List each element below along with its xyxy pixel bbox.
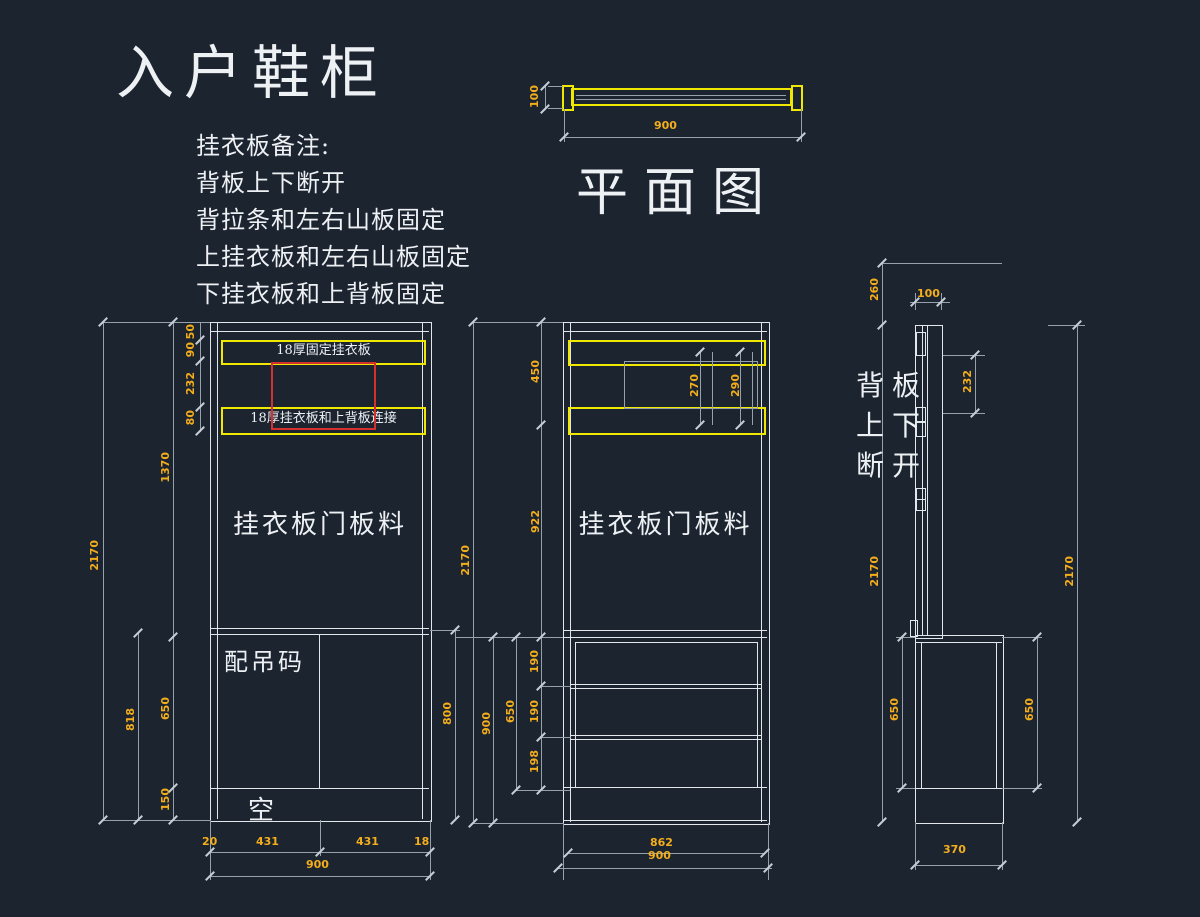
- shelf-line: [571, 688, 761, 689]
- dim-label: 190: [528, 700, 541, 723]
- dim-label: 862: [650, 836, 673, 849]
- plan-view-title: 平面图: [576, 150, 780, 225]
- dim-label: 818: [124, 708, 137, 731]
- hanger-code-text: 配吊码: [224, 642, 305, 677]
- shelf-line: [571, 739, 761, 740]
- door-material-text: 挂衣板门板料: [210, 504, 430, 541]
- bottom-line: [564, 820, 767, 821]
- dim-ext: [548, 108, 563, 109]
- note-line: 挂衣板备注:: [196, 128, 471, 165]
- base-cabinet-profile: [915, 635, 1004, 824]
- side-panel-line: [761, 323, 762, 822]
- dim-ext: [455, 637, 563, 638]
- dim-label: 900: [654, 119, 677, 132]
- note-line: 上挂衣板和左右山板固定: [196, 239, 471, 276]
- top-panel-line: [211, 331, 429, 332]
- dim-label: 100: [528, 85, 541, 108]
- dim-label: 260: [868, 278, 881, 301]
- dim-label: 900: [306, 858, 329, 871]
- dim-line: [1077, 325, 1078, 822]
- inner-box-line: [921, 642, 922, 788]
- dim-label: 922: [529, 510, 542, 533]
- dim-line: [493, 637, 494, 823]
- dim-label: 650: [159, 697, 172, 720]
- dim-ext: [548, 86, 563, 87]
- dim-label: 650: [888, 698, 901, 721]
- center-divider: [319, 634, 320, 788]
- dim-line: [138, 633, 139, 820]
- plinth-line: [915, 788, 1002, 789]
- panel-line: [576, 99, 786, 100]
- dim-ext: [103, 322, 210, 323]
- side-panel-line: [422, 323, 423, 819]
- dim-ext: [943, 355, 985, 356]
- dim-line: [173, 322, 174, 820]
- dim-label: 20: [202, 835, 217, 848]
- dim-label: 650: [504, 700, 517, 723]
- empty-text: 空: [248, 790, 274, 827]
- dim-line: [473, 322, 474, 823]
- inner-box-line: [575, 642, 757, 643]
- hanger-clip: [916, 332, 926, 356]
- dim-ext: [103, 820, 210, 821]
- dim-label: 900: [648, 849, 671, 862]
- divider-line: [564, 630, 767, 631]
- dim-label: 2170: [459, 545, 472, 576]
- divider-line: [211, 628, 429, 629]
- note-line: 背板上下断开: [196, 165, 471, 202]
- dim-line: [915, 865, 1002, 866]
- top-reference-line: [882, 263, 1002, 264]
- dim-line: [103, 322, 104, 820]
- hanger-clip: [916, 499, 926, 511]
- dim-ext: [563, 823, 564, 880]
- dim-line: [558, 868, 772, 869]
- bottom-shelf-line: [564, 787, 767, 788]
- note-line: 断开: [856, 446, 928, 486]
- dim-ext: [943, 413, 985, 414]
- note-line: 背拉条和左右山板固定: [196, 202, 471, 239]
- board-label: 18厚固定挂衣板: [223, 342, 424, 359]
- dim-line: [210, 876, 430, 877]
- dim-label: 650: [1023, 698, 1036, 721]
- divider-line: [564, 637, 767, 638]
- dim-ext: [516, 790, 570, 791]
- dim-label: 190: [528, 650, 541, 673]
- inner-box-line: [996, 642, 997, 788]
- dim-line: [541, 322, 542, 790]
- dim-label: 198: [528, 750, 541, 773]
- side-panel-line: [217, 323, 218, 819]
- dim-label: 800: [441, 702, 454, 725]
- divider-line: [211, 634, 429, 635]
- dim-label: 50: [184, 324, 197, 339]
- inner-box-line: [575, 642, 576, 787]
- hanger-board-bottom: [568, 407, 766, 435]
- shelf-line: [571, 684, 761, 685]
- dim-label: 900: [480, 712, 493, 735]
- dim-line: [455, 630, 456, 820]
- dim-label: 232: [961, 370, 974, 393]
- dim-ext: [473, 823, 563, 824]
- side-panel-line: [570, 323, 571, 822]
- highlight-red-box: [271, 362, 376, 430]
- dim-label: 1370: [159, 452, 172, 483]
- dim-label: 80: [184, 410, 197, 425]
- dim-label: 90: [184, 342, 197, 357]
- dim-ext: [541, 686, 571, 687]
- panel-line: [576, 95, 786, 96]
- dim-label: 18: [414, 835, 429, 848]
- cad-canvas: 入户鞋柜 挂衣板备注: 背板上下断开 背拉条和左右山板固定 上挂衣板和左右山板固…: [0, 0, 1200, 917]
- inner-box-line: [757, 642, 758, 787]
- dim-label: 232: [184, 372, 197, 395]
- plan-panel: [571, 88, 792, 106]
- back-panel-note: 背板 上下 断开: [856, 366, 928, 486]
- dim-ext: [541, 737, 571, 738]
- dim-label: 150: [159, 788, 172, 811]
- dim-ext: [1048, 325, 1085, 326]
- note-line: 上下: [856, 406, 928, 446]
- dim-label: 431: [256, 835, 279, 848]
- bottom-shelf-line: [211, 788, 429, 789]
- dim-label: 100: [917, 287, 940, 300]
- note-line: 下挂衣板和上背板固定: [196, 276, 471, 313]
- dim-label: 2170: [868, 556, 881, 587]
- dim-label: 370: [943, 843, 966, 856]
- top-panel-line: [564, 331, 767, 332]
- dim-line: [882, 263, 883, 822]
- dim-ext: [473, 322, 563, 323]
- dim-line: [1037, 637, 1038, 788]
- dim-line: [975, 355, 976, 413]
- note-line: 背板: [856, 366, 928, 406]
- dim-line: [902, 637, 903, 788]
- dim-label: 450: [529, 360, 542, 383]
- dim-label: 270: [688, 374, 701, 397]
- dim-label: 290: [729, 374, 742, 397]
- dim-line: [752, 352, 753, 425]
- dim-label: 431: [356, 835, 379, 848]
- dim-ext: [768, 823, 769, 880]
- notes-block: 挂衣板备注: 背板上下断开 背拉条和左右山板固定 上挂衣板和左右山板固定 下挂衣…: [196, 128, 471, 313]
- dim-line: [712, 352, 713, 425]
- dim-label: 2170: [88, 540, 101, 571]
- door-material-text: 挂衣板门板料: [563, 504, 768, 541]
- dim-label: 2170: [1063, 556, 1076, 587]
- inner-box-line: [915, 642, 1002, 643]
- shelf-line: [571, 735, 761, 736]
- drawing-title: 入户鞋柜: [116, 26, 388, 110]
- plan-end-cap: [791, 85, 803, 111]
- dim-line: [564, 137, 801, 138]
